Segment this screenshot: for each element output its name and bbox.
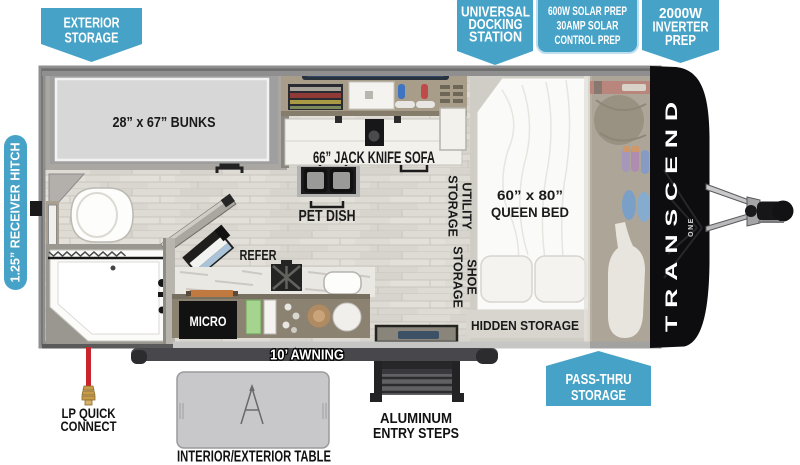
- svg-text:28” x 67” BUNKS: 28” x 67” BUNKS: [113, 114, 216, 131]
- svg-text:INTERIOR/EXTERIOR TABLE: INTERIOR/EXTERIOR TABLE: [177, 449, 331, 465]
- svg-text:66” JACK KNIFE SOFA: 66” JACK KNIFE SOFA: [313, 149, 435, 167]
- svg-text:REFER: REFER: [240, 247, 277, 264]
- svg-text:UTILITYSTORAGE: UTILITYSTORAGE: [446, 175, 474, 237]
- svg-text:PREP: PREP: [665, 33, 696, 49]
- svg-text:10’ AWNING: 10’ AWNING: [270, 348, 344, 364]
- svg-text:1.25” RECEIVER HITCH: 1.25” RECEIVER HITCH: [9, 143, 23, 283]
- svg-text:30AMP SOLAR: 30AMP SOLAR: [557, 21, 620, 33]
- svg-text:PET DISH: PET DISH: [299, 208, 356, 225]
- svg-text:STORAGE: STORAGE: [65, 31, 119, 47]
- svg-text:STATION: STATION: [469, 30, 522, 46]
- svg-text:600W SOLAR PREP: 600W SOLAR PREP: [548, 6, 627, 18]
- svg-text:ENTRY STEPS: ENTRY STEPS: [373, 425, 459, 442]
- svg-text:EXTERIOR: EXTERIOR: [64, 16, 120, 32]
- svg-text:CONNECT: CONNECT: [61, 418, 117, 434]
- svg-text:STORAGE: STORAGE: [571, 388, 626, 404]
- svg-text:QUEEN BED: QUEEN BED: [491, 205, 569, 220]
- svg-text:PASS-THRU: PASS-THRU: [566, 372, 632, 388]
- svg-text:TRANSCEND: TRANSCEND: [662, 94, 681, 332]
- svg-text:MICRO: MICRO: [190, 313, 227, 329]
- svg-text:HIDDEN STORAGE: HIDDEN STORAGE: [471, 319, 579, 333]
- svg-text:CONTROL PREP: CONTROL PREP: [555, 35, 621, 47]
- svg-text:60” x 80”: 60” x 80”: [497, 188, 563, 203]
- svg-text:ONE: ONE: [688, 217, 695, 237]
